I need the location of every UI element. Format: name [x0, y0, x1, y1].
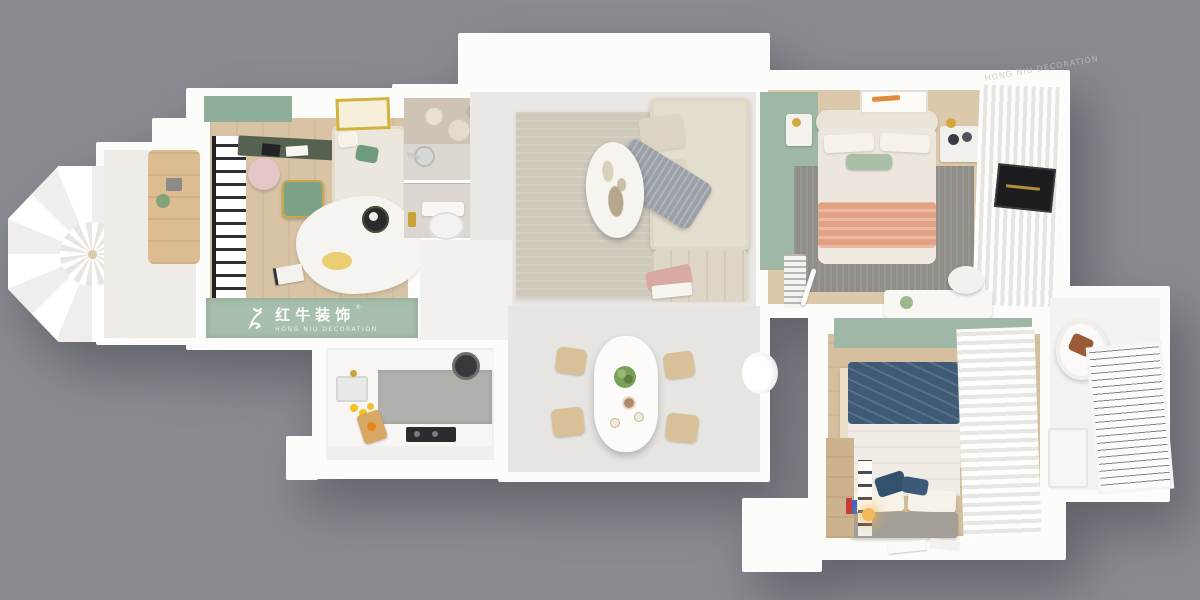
- floorplan-render: 红牛装饰® HONG NIU DECORATION: [0, 0, 1200, 600]
- registered-mark: ®: [355, 304, 361, 311]
- vanity-stool: [948, 266, 984, 294]
- dining-chair-3: [662, 350, 695, 380]
- bedroom2-curtains: [956, 327, 1041, 540]
- nightstand-decor-dark2: [962, 132, 972, 142]
- master-duvet-fold: [818, 248, 936, 264]
- bedside-lamp-warm: [862, 508, 875, 521]
- side-table-dish: [369, 212, 378, 221]
- table-cup-2: [634, 412, 644, 422]
- annex-gray-box: [166, 178, 182, 191]
- loveseat-pillow-white: [337, 131, 359, 149]
- brand-name-en: HONG NIU DECORATION: [275, 326, 378, 333]
- kitchen-sink: [336, 376, 368, 402]
- dining-chair-4: [665, 412, 700, 443]
- vanity-flowers: [900, 296, 913, 309]
- wok-pan: [452, 352, 480, 380]
- dining-chair-2: [551, 406, 586, 437]
- apartment-plan: 红牛装饰® HONG NIU DECORATION: [0, 0, 1200, 600]
- study-green-cabinet: [204, 96, 292, 122]
- yellow-art-frame: [335, 97, 390, 131]
- dining-table: [594, 336, 658, 452]
- louvered-blinds: [1086, 341, 1175, 495]
- master-pillow-right: [880, 133, 931, 154]
- orange-fruit: [367, 422, 376, 431]
- annex-plant: [156, 194, 170, 208]
- navy-blanket: [848, 362, 960, 424]
- bull-icon: [246, 306, 268, 330]
- lemon-3: [367, 403, 374, 410]
- desk-chair-pink: [248, 158, 280, 190]
- desk-papers: [286, 145, 309, 157]
- brand-logo: 红牛装饰® HONG NIU DECORATION: [206, 298, 418, 338]
- kitchen-step-wall: [286, 436, 318, 480]
- dining-pendant-shade: [742, 352, 778, 394]
- annex-wood-cabinet: [148, 150, 200, 264]
- bedroom2-foot-wall: [742, 498, 822, 572]
- gold-faucet: [350, 370, 357, 377]
- gold-lamp-left: [792, 118, 801, 127]
- shelf-books-blue: [852, 500, 857, 514]
- brand-name-cn: 红牛装饰: [275, 306, 355, 324]
- dining-chair-1: [554, 346, 587, 376]
- table-bowl: [622, 396, 636, 410]
- study-shelf: [212, 136, 246, 300]
- gold-fixture: [408, 212, 416, 227]
- brand-text: 红牛装饰® HONG NIU DECORATION: [275, 304, 378, 333]
- sage-lumbar-pillow: [846, 154, 892, 170]
- cooktop-knob-1: [414, 431, 420, 437]
- nightstand-decor-dark: [948, 134, 959, 145]
- master-art-frame: [860, 90, 928, 114]
- gold-lamp-right: [946, 118, 956, 128]
- hallway-floor: [420, 240, 512, 340]
- cooktop-knob-2: [432, 431, 438, 437]
- desk-laptop: [261, 143, 280, 157]
- master-pillow-left: [824, 133, 875, 154]
- table-plant: [614, 366, 636, 388]
- umbrella-pole-tip: [88, 250, 97, 259]
- bedroom2-wood-wardrobe: [826, 438, 854, 538]
- bedroom2-white-shelf: [858, 460, 872, 536]
- watermark-band: 红牛装饰® HONG NIU DECORATION: [206, 298, 418, 338]
- rug-yellow-spot: [322, 252, 352, 270]
- toilet-bowl: [428, 212, 464, 240]
- lemon-1: [350, 404, 358, 412]
- small-cabinet: [1048, 428, 1088, 488]
- kitchen-gray-counter: [376, 370, 492, 424]
- table-cup-1: [610, 418, 620, 428]
- peach-blanket: [818, 202, 936, 248]
